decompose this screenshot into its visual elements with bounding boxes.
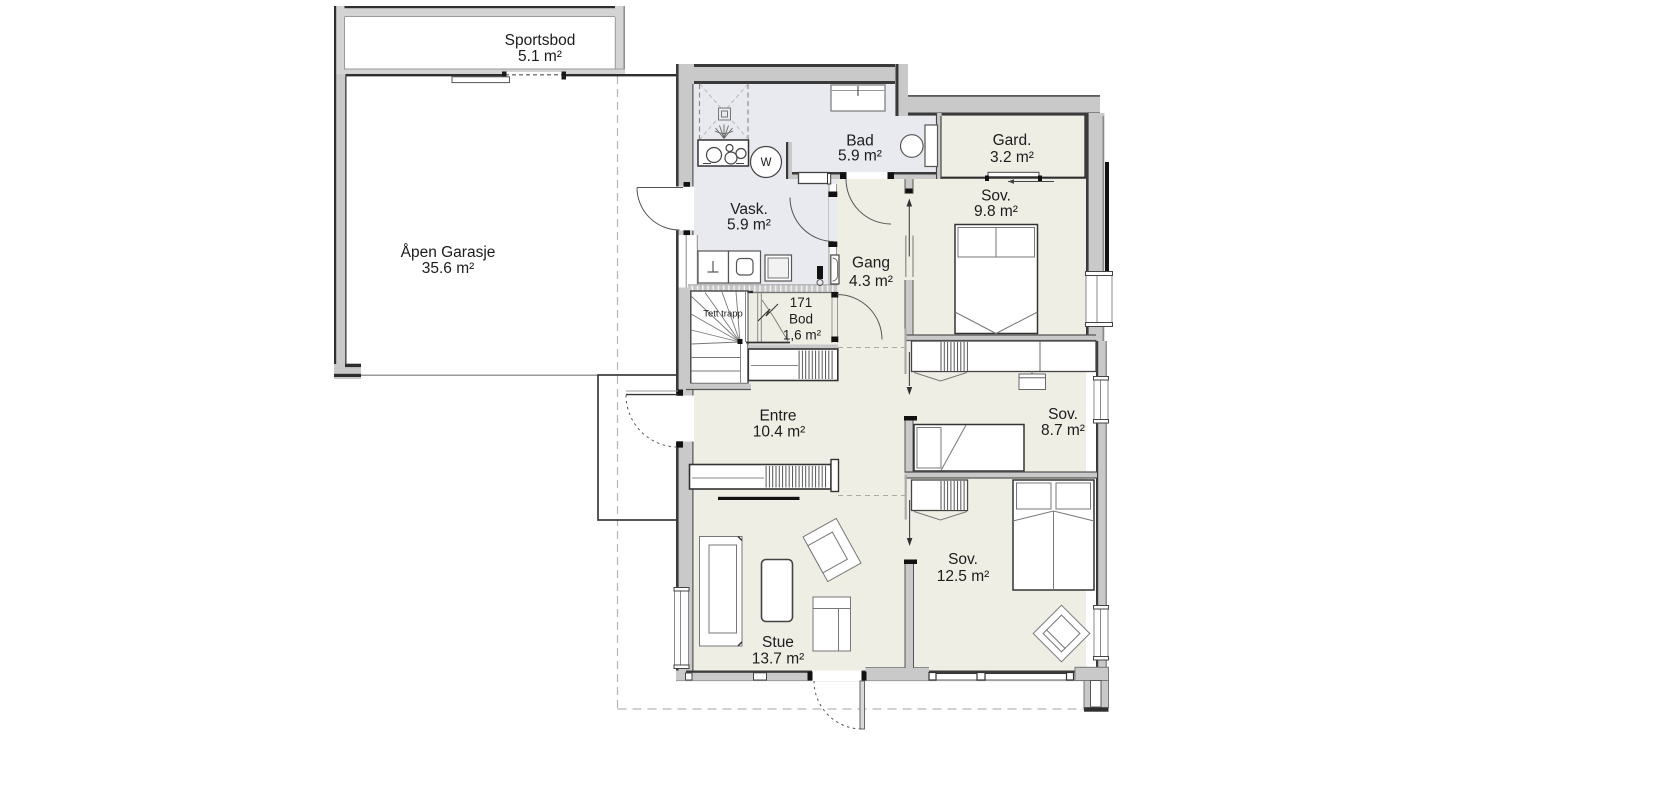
svg-text:8.7 m²: 8.7 m²: [1041, 422, 1085, 439]
svg-text:Gard.: Gard.: [993, 132, 1032, 149]
svg-text:4.3 m²: 4.3 m²: [849, 273, 893, 290]
svg-text:3.2 m²: 3.2 m²: [990, 149, 1034, 166]
svg-text:10.4 m²: 10.4 m²: [753, 424, 806, 441]
svg-text:5.9 m²: 5.9 m²: [727, 217, 771, 234]
svg-text:5.9 m²: 5.9 m²: [838, 148, 882, 165]
svg-text:35.6 m²: 35.6 m²: [422, 260, 475, 277]
svg-text:9.8 m²: 9.8 m²: [974, 203, 1018, 220]
svg-text:1,6 m²: 1,6 m²: [783, 328, 822, 343]
svg-text:W: W: [761, 157, 772, 169]
svg-text:Tett trapp: Tett trapp: [703, 309, 743, 320]
svg-text:Entre: Entre: [759, 408, 796, 425]
svg-text:Bod: Bod: [789, 312, 813, 327]
svg-text:Sov.: Sov.: [1048, 406, 1078, 423]
svg-text:12.5 m²: 12.5 m²: [937, 568, 990, 585]
svg-text:Sportsbod: Sportsbod: [505, 32, 576, 49]
svg-text:Vask.: Vask.: [730, 201, 768, 218]
svg-text:13.7 m²: 13.7 m²: [752, 651, 805, 668]
svg-text:Stue: Stue: [762, 634, 794, 651]
svg-text:5.1 m²: 5.1 m²: [518, 48, 562, 65]
svg-text:Sov.: Sov.: [948, 551, 978, 568]
svg-text:171: 171: [790, 295, 813, 310]
svg-text:Åpen Garasje: Åpen Garasje: [401, 244, 496, 261]
svg-text:Gang: Gang: [852, 255, 890, 272]
svg-text:Sov.: Sov.: [981, 188, 1011, 205]
